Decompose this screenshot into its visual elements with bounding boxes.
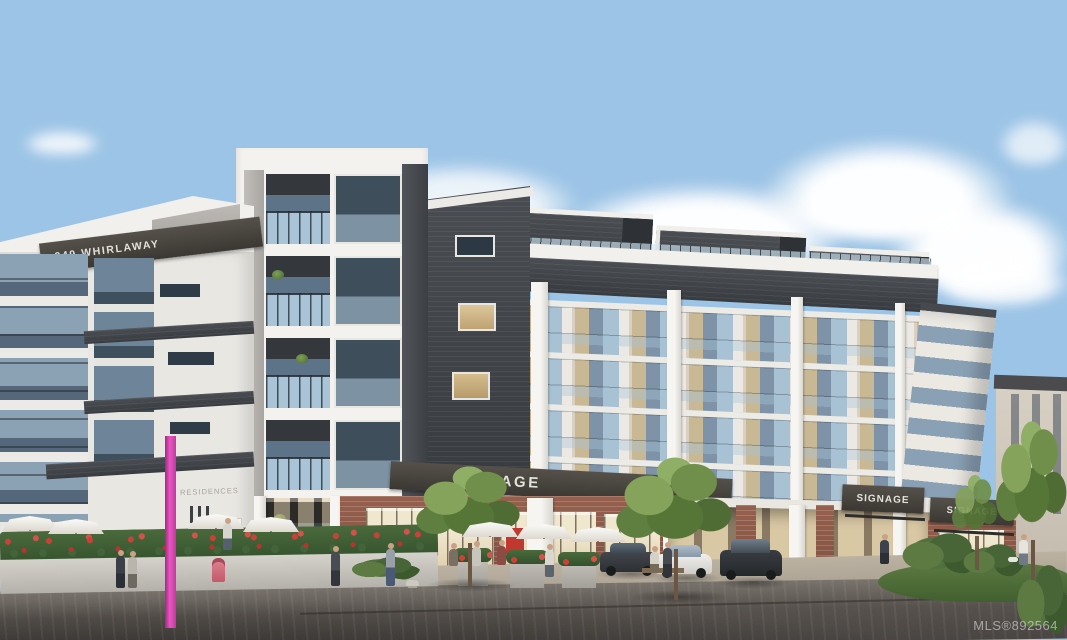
planter-flowers <box>558 552 600 566</box>
person <box>331 552 340 586</box>
window-slot <box>160 284 200 297</box>
dog <box>406 580 419 586</box>
person-seated <box>497 546 506 565</box>
tree-shadow <box>630 590 730 604</box>
rendering-scene: 949 WHIRLAWAY RESIDENCES SIGNAGE SIGNAGE… <box>0 0 1067 640</box>
person-seated <box>449 549 458 566</box>
tower-floor-row <box>266 174 402 244</box>
window <box>455 235 495 257</box>
signage-band-middle: SIGNAGE <box>841 484 924 514</box>
tower-floor-row <box>266 338 402 408</box>
window-slot <box>170 422 210 434</box>
car-wheel <box>766 570 776 580</box>
balcony <box>266 256 330 326</box>
signage-text-right: SIGNAGE <box>946 505 997 518</box>
person <box>223 524 232 550</box>
window-slot <box>168 352 214 365</box>
tree-shadow <box>426 578 516 592</box>
person <box>116 556 125 588</box>
window-bay <box>334 174 402 244</box>
person <box>386 549 395 586</box>
pink-pole <box>165 436 176 628</box>
person-seated <box>650 552 659 572</box>
tower-floor-row <box>266 256 402 326</box>
person <box>1019 540 1028 565</box>
window-lit <box>458 303 496 331</box>
person <box>663 548 672 577</box>
person <box>880 540 889 564</box>
window-lit <box>452 372 490 400</box>
window-bay <box>334 338 402 408</box>
signage-text-middle: SIGNAGE <box>856 492 910 505</box>
balcony-plant <box>296 354 308 363</box>
balcony-plant <box>272 270 284 279</box>
mls-watermark-text: MLS®892564 <box>973 618 1058 633</box>
planter-flowers <box>506 550 548 564</box>
background-building-fascia <box>994 375 1067 392</box>
mls-watermark: MLS®892564 <box>973 618 1058 633</box>
cloud <box>928 252 1067 304</box>
left-wing-glass-strip <box>94 258 154 466</box>
tower-floor-row <box>266 420 402 490</box>
person <box>128 557 137 588</box>
cloud <box>22 130 102 154</box>
car-wheel <box>696 568 706 578</box>
window-bay <box>334 256 402 326</box>
car-cabin <box>610 543 646 555</box>
background-building-windows <box>998 394 1065 514</box>
car-wheel <box>606 566 616 576</box>
car-cabin <box>731 539 769 553</box>
left-wing-balcony-stack <box>0 254 88 522</box>
person-seated <box>472 547 481 566</box>
suv-dark <box>720 550 782 576</box>
cloud <box>998 118 1067 164</box>
facade-column <box>791 297 803 517</box>
shrub <box>348 554 420 582</box>
signage-text-left: SIGNAGE <box>454 470 541 492</box>
balcony <box>266 338 330 408</box>
dog <box>1008 557 1018 562</box>
signage-band-right: SIGNAGE <box>929 497 1014 526</box>
car-wheel <box>726 570 736 580</box>
person <box>545 550 554 577</box>
balcony <box>266 420 330 490</box>
balcony <box>266 174 330 244</box>
fire-hydrant <box>212 558 225 582</box>
